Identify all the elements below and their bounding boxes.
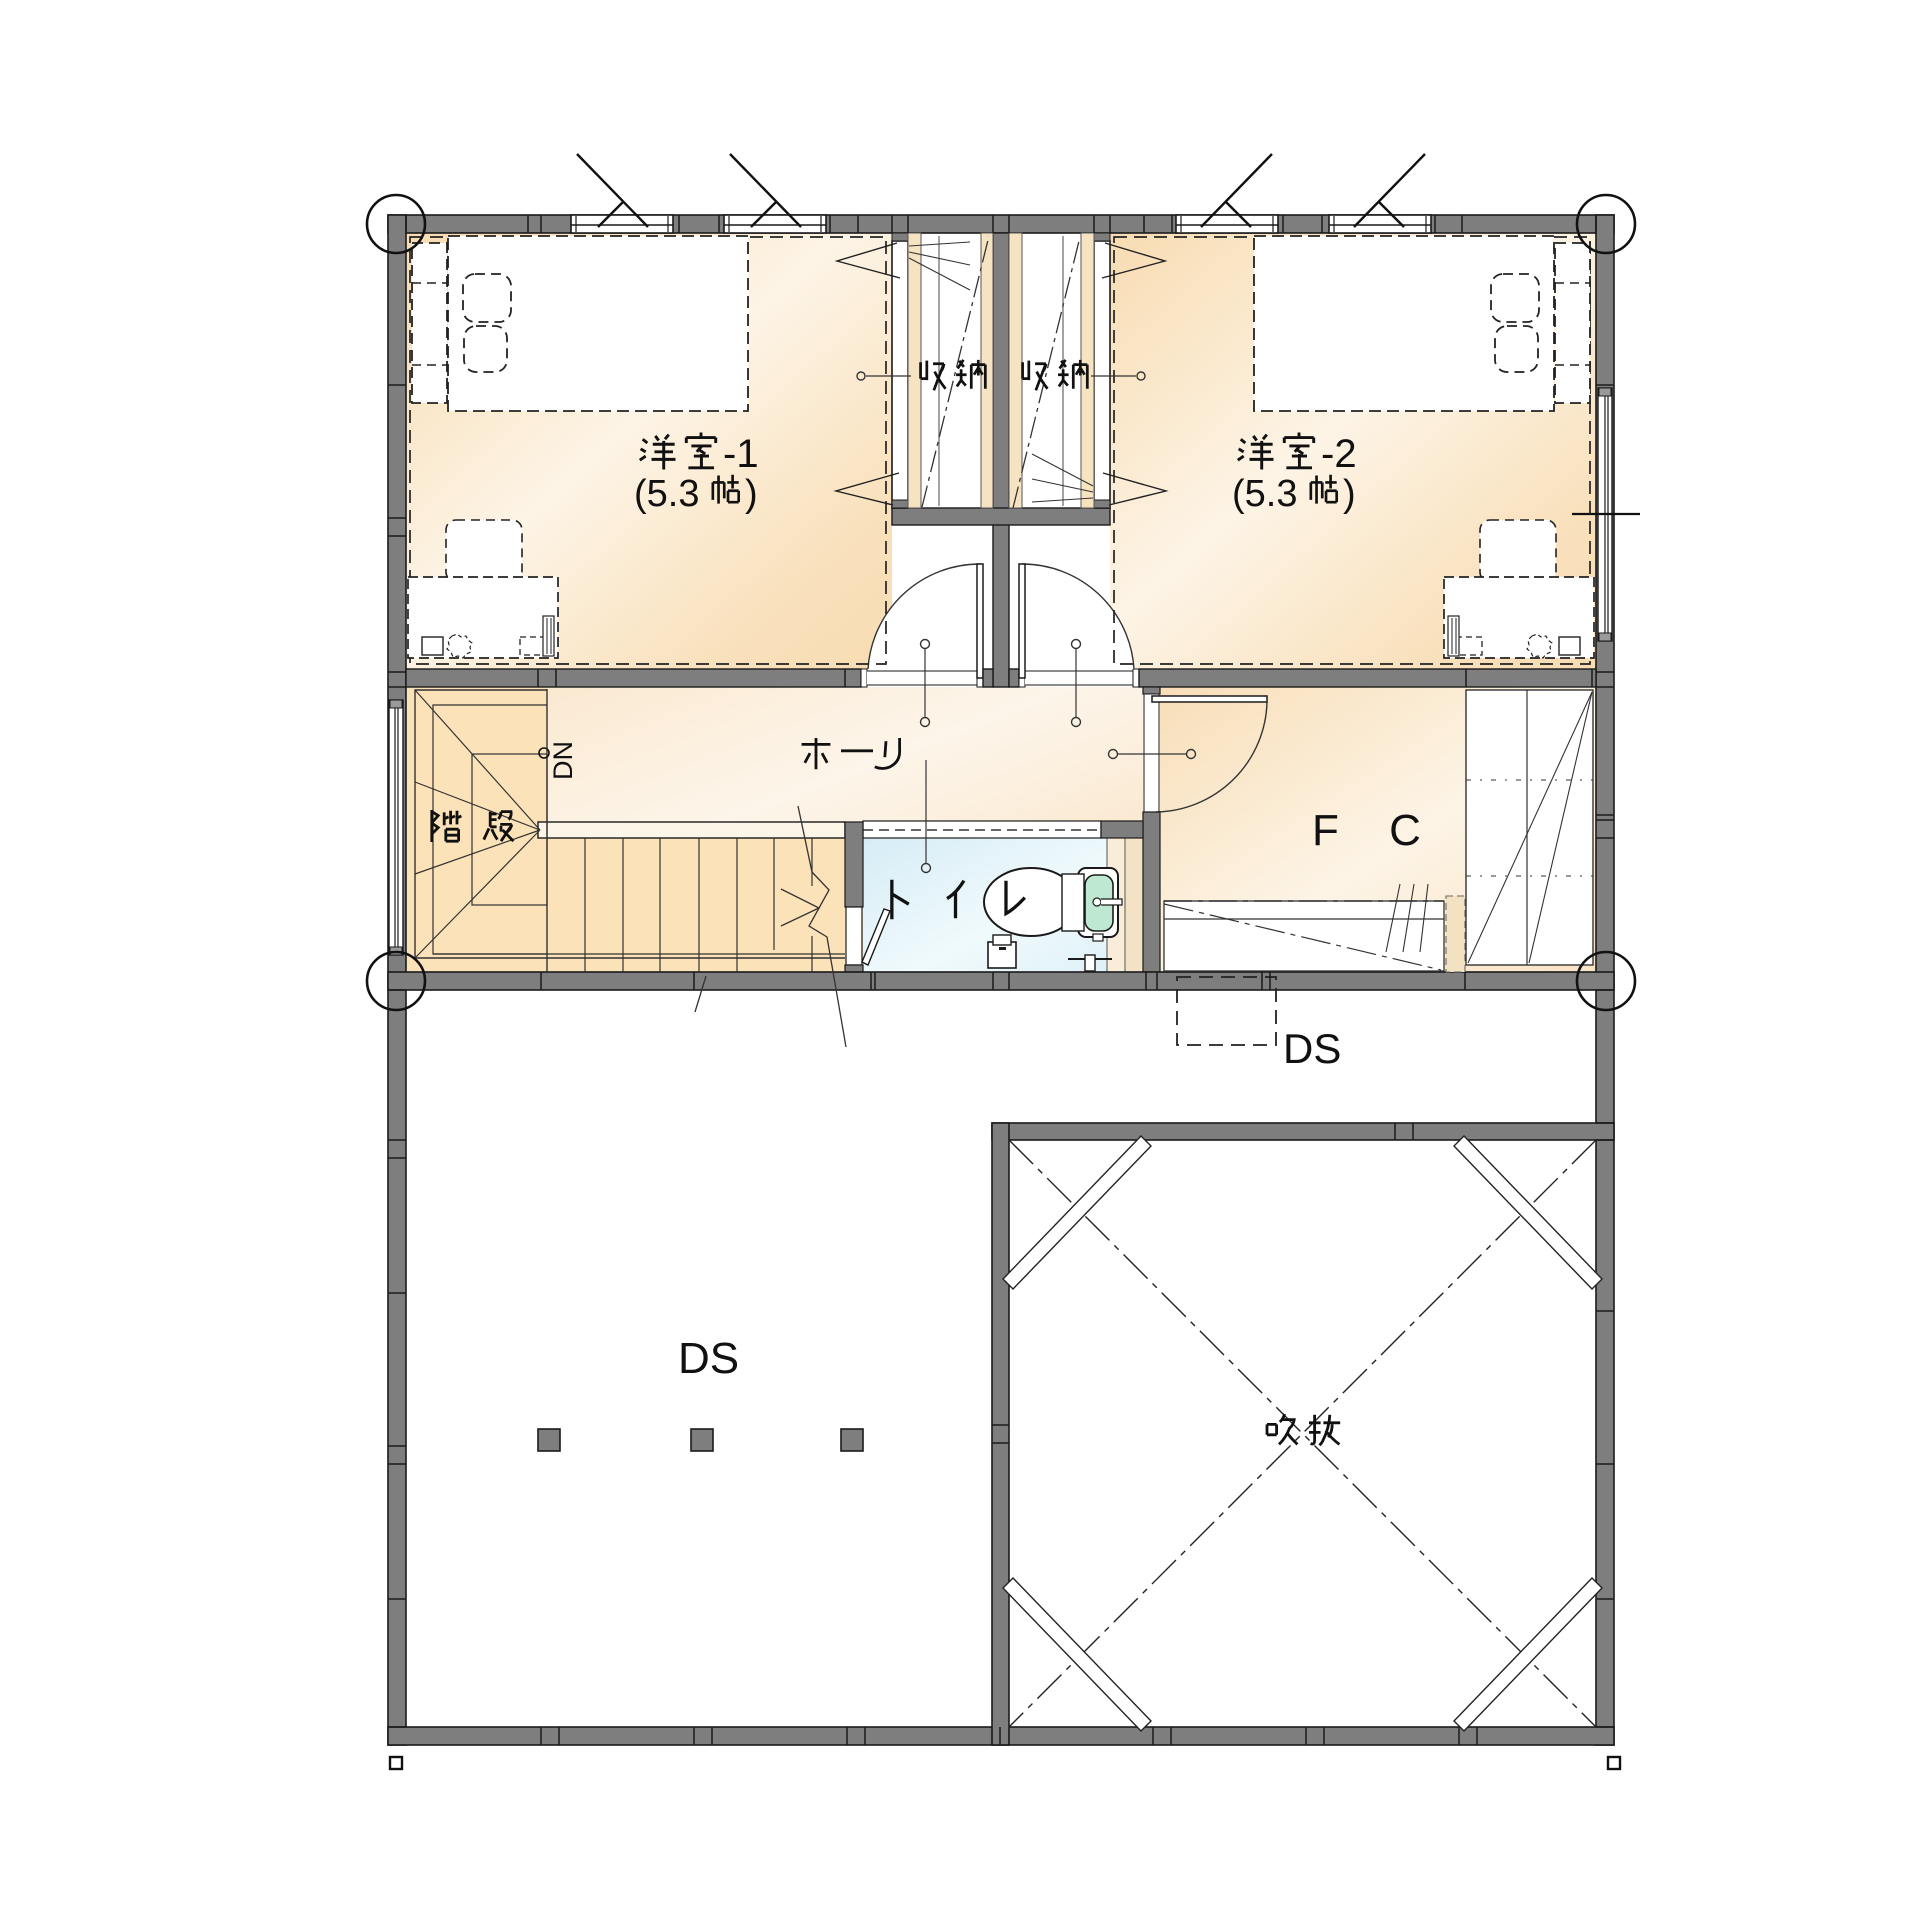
svg-text:(5.3: (5.3 [1232, 473, 1297, 515]
svg-text:DS: DS [678, 1334, 739, 1383]
svg-text:-2: -2 [1321, 432, 1357, 476]
svg-text:-1: -1 [723, 432, 759, 476]
svg-text:): ) [745, 473, 758, 515]
svg-text:DN: DN [548, 741, 578, 780]
svg-text:F C: F C [1312, 806, 1440, 855]
svg-text:): ) [1343, 473, 1356, 515]
svg-text:(5.3: (5.3 [634, 473, 699, 515]
svg-text:DS: DS [1283, 1025, 1341, 1072]
